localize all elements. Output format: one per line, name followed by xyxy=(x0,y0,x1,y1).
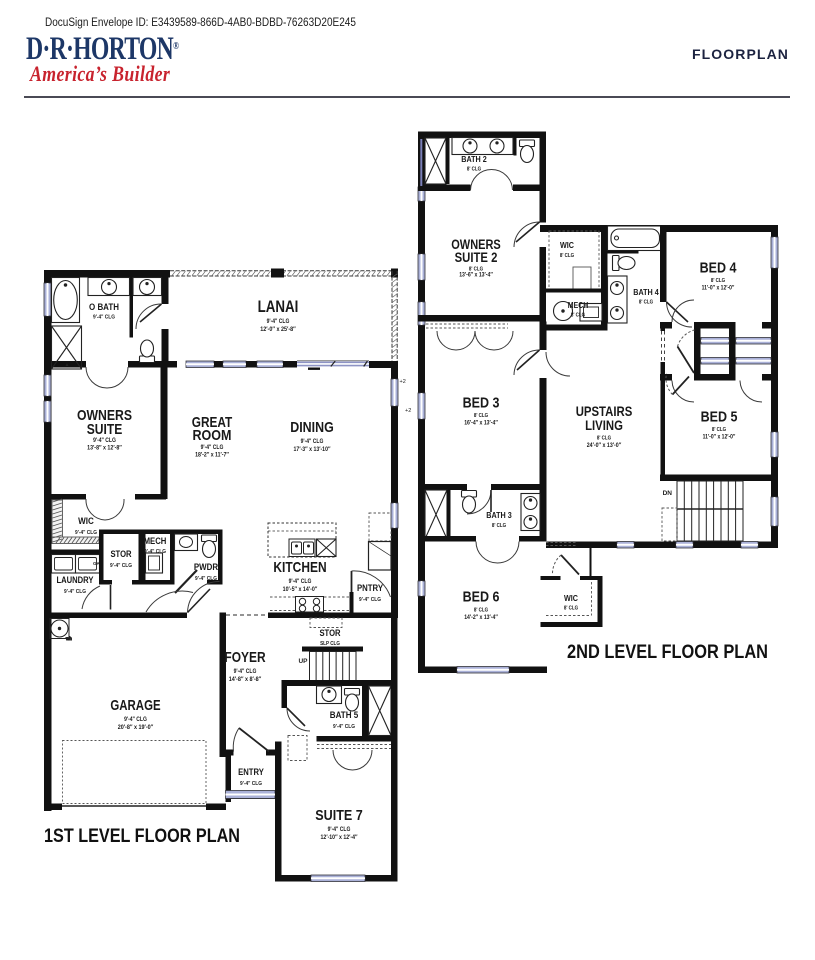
svg-text:O BATH: O BATH xyxy=(89,302,119,313)
svg-text:8' CLG: 8' CLG xyxy=(711,278,725,284)
svg-text:9'-4" CLG: 9'-4" CLG xyxy=(234,669,257,675)
svg-text:14′-8″ x 8′-8″: 14′-8″ x 8′-8″ xyxy=(229,676,262,683)
svg-text:BED 3: BED 3 xyxy=(463,395,500,412)
svg-text:9'-4" CLG: 9'-4" CLG xyxy=(93,438,116,444)
svg-text:11′-0″ x 12′-0″: 11′-0″ x 12′-0″ xyxy=(703,435,736,441)
svg-text:▲: ▲ xyxy=(65,362,70,368)
svg-text:9'-4" CLG: 9'-4" CLG xyxy=(93,315,115,321)
svg-text:9'-4" CLG: 9'-4" CLG xyxy=(240,781,262,787)
svg-text:9'-4" CLG: 9'-4" CLG xyxy=(64,589,86,595)
svg-text:BATH 4: BATH 4 xyxy=(633,287,659,297)
svg-text:SUITE: SUITE xyxy=(87,421,123,438)
svg-text:1ST LEVEL FLOOR PLAN: 1ST LEVEL FLOOR PLAN xyxy=(44,825,240,847)
svg-text:ROOM: ROOM xyxy=(193,427,232,444)
svg-text:8' CLG: 8' CLG xyxy=(712,427,726,433)
svg-text:8' CLG: 8' CLG xyxy=(474,413,488,419)
svg-text:9'-4" CLG: 9'-4" CLG xyxy=(110,563,132,569)
svg-text:14′-2″ x 13′-4″: 14′-2″ x 13′-4″ xyxy=(464,615,498,621)
svg-text:STOR: STOR xyxy=(319,628,340,639)
svg-text:wh: wh xyxy=(66,636,72,641)
svg-text:BED 5: BED 5 xyxy=(701,409,738,426)
svg-text:BATH 2: BATH 2 xyxy=(461,154,487,164)
svg-text:9'-4" CLG: 9'-4" CLG xyxy=(144,549,166,555)
svg-text:+2: +2 xyxy=(400,379,406,385)
svg-text:DINING: DINING xyxy=(290,419,334,436)
svg-text:9'-4" CLG: 9'-4" CLG xyxy=(301,439,324,445)
svg-text:SLP CLG: SLP CLG xyxy=(320,641,340,647)
svg-text:SUITE 7: SUITE 7 xyxy=(315,807,363,824)
svg-text:13′-6″ x 13′-4″: 13′-6″ x 13′-4″ xyxy=(459,273,493,279)
svg-text:WIC: WIC xyxy=(78,516,94,527)
svg-text:FOYER: FOYER xyxy=(224,649,265,666)
svg-text:16′-4″ x 13′-4″: 16′-4″ x 13′-4″ xyxy=(464,421,498,427)
svg-text:9'-4" CLG: 9'-4" CLG xyxy=(333,724,355,730)
svg-text:SUITE 2: SUITE 2 xyxy=(455,250,498,265)
svg-text:9'-4" CLG: 9'-4" CLG xyxy=(75,530,97,536)
svg-text:9'-4" CLG: 9'-4" CLG xyxy=(359,597,381,603)
svg-text:LANAI: LANAI xyxy=(258,297,299,316)
svg-text:PWDR: PWDR xyxy=(194,562,218,573)
svg-text:WIC: WIC xyxy=(564,593,578,603)
svg-text:8' CLG: 8' CLG xyxy=(639,300,653,306)
svg-text:PNTRY: PNTRY xyxy=(357,583,384,594)
svg-text:BED 4: BED 4 xyxy=(700,260,737,277)
svg-text:12′-10″ x 12′-4″: 12′-10″ x 12′-4″ xyxy=(321,834,358,841)
svg-text:9'-4" CLG: 9'-4" CLG xyxy=(289,579,312,585)
svg-text:UP: UP xyxy=(298,658,308,665)
svg-text:13′-8″ x 12′-8″: 13′-8″ x 12′-8″ xyxy=(87,445,122,452)
svg-text:12′-0″ x 25′-8″: 12′-0″ x 25′-8″ xyxy=(260,326,296,333)
svg-text:GARAGE: GARAGE xyxy=(110,697,160,714)
svg-text:8' CLG: 8' CLG xyxy=(597,436,611,442)
svg-text:WIC: WIC xyxy=(560,240,574,250)
svg-text:BED 6: BED 6 xyxy=(463,589,500,606)
svg-text:BATH 3: BATH 3 xyxy=(486,510,512,520)
svg-text:MECH: MECH xyxy=(144,536,167,547)
svg-text:8' CLG: 8' CLG xyxy=(564,606,578,612)
svg-text:8' CLG: 8' CLG xyxy=(560,253,574,259)
svg-text:11′-0″ x 12′-0″: 11′-0″ x 12′-0″ xyxy=(702,286,735,292)
svg-text:8' CLG: 8' CLG xyxy=(467,167,481,173)
svg-text:8' CLG: 8' CLG xyxy=(571,313,585,319)
svg-text:9'-4" CLG: 9'-4" CLG xyxy=(195,576,217,582)
svg-text:8' CLG: 8' CLG xyxy=(492,523,506,529)
svg-text:MECH: MECH xyxy=(568,300,588,310)
svg-text:18′-2″ x 11′-7″: 18′-2″ x 11′-7″ xyxy=(195,452,229,459)
svg-text:ENTRY: ENTRY xyxy=(238,767,264,778)
svg-text:9'-4" CLG: 9'-4" CLG xyxy=(201,445,224,451)
svg-text:2ND LEVEL FLOOR PLAN: 2ND LEVEL FLOOR PLAN xyxy=(567,641,768,663)
svg-text:24′-0″ x 13′-0″: 24′-0″ x 13′-0″ xyxy=(587,443,622,449)
svg-text:BATH 5: BATH 5 xyxy=(330,710,359,721)
svg-text:9'-4" CLG: 9'-4" CLG xyxy=(267,319,290,325)
svg-text:STOR: STOR xyxy=(110,549,131,560)
svg-text:8' CLG: 8' CLG xyxy=(474,608,488,614)
svg-text:LIVING: LIVING xyxy=(585,417,623,433)
svg-text:17′-3″ x 13′-10″: 17′-3″ x 13′-10″ xyxy=(294,446,331,453)
svg-text:9'-4" CLG: 9'-4" CLG xyxy=(328,827,351,833)
svg-text:9'-4" CLG: 9'-4" CLG xyxy=(124,717,147,723)
svg-text:+2: +2 xyxy=(405,408,411,414)
svg-text:10′-5″ x 14′-0″: 10′-5″ x 14′-0″ xyxy=(283,586,318,593)
svg-text:KITCHEN: KITCHEN xyxy=(273,559,326,576)
svg-text:DN: DN xyxy=(663,490,673,497)
svg-text:20′-8″ x 19′-0″: 20′-8″ x 19′-0″ xyxy=(118,724,154,731)
svg-text:LAUNDRY: LAUNDRY xyxy=(57,575,95,586)
